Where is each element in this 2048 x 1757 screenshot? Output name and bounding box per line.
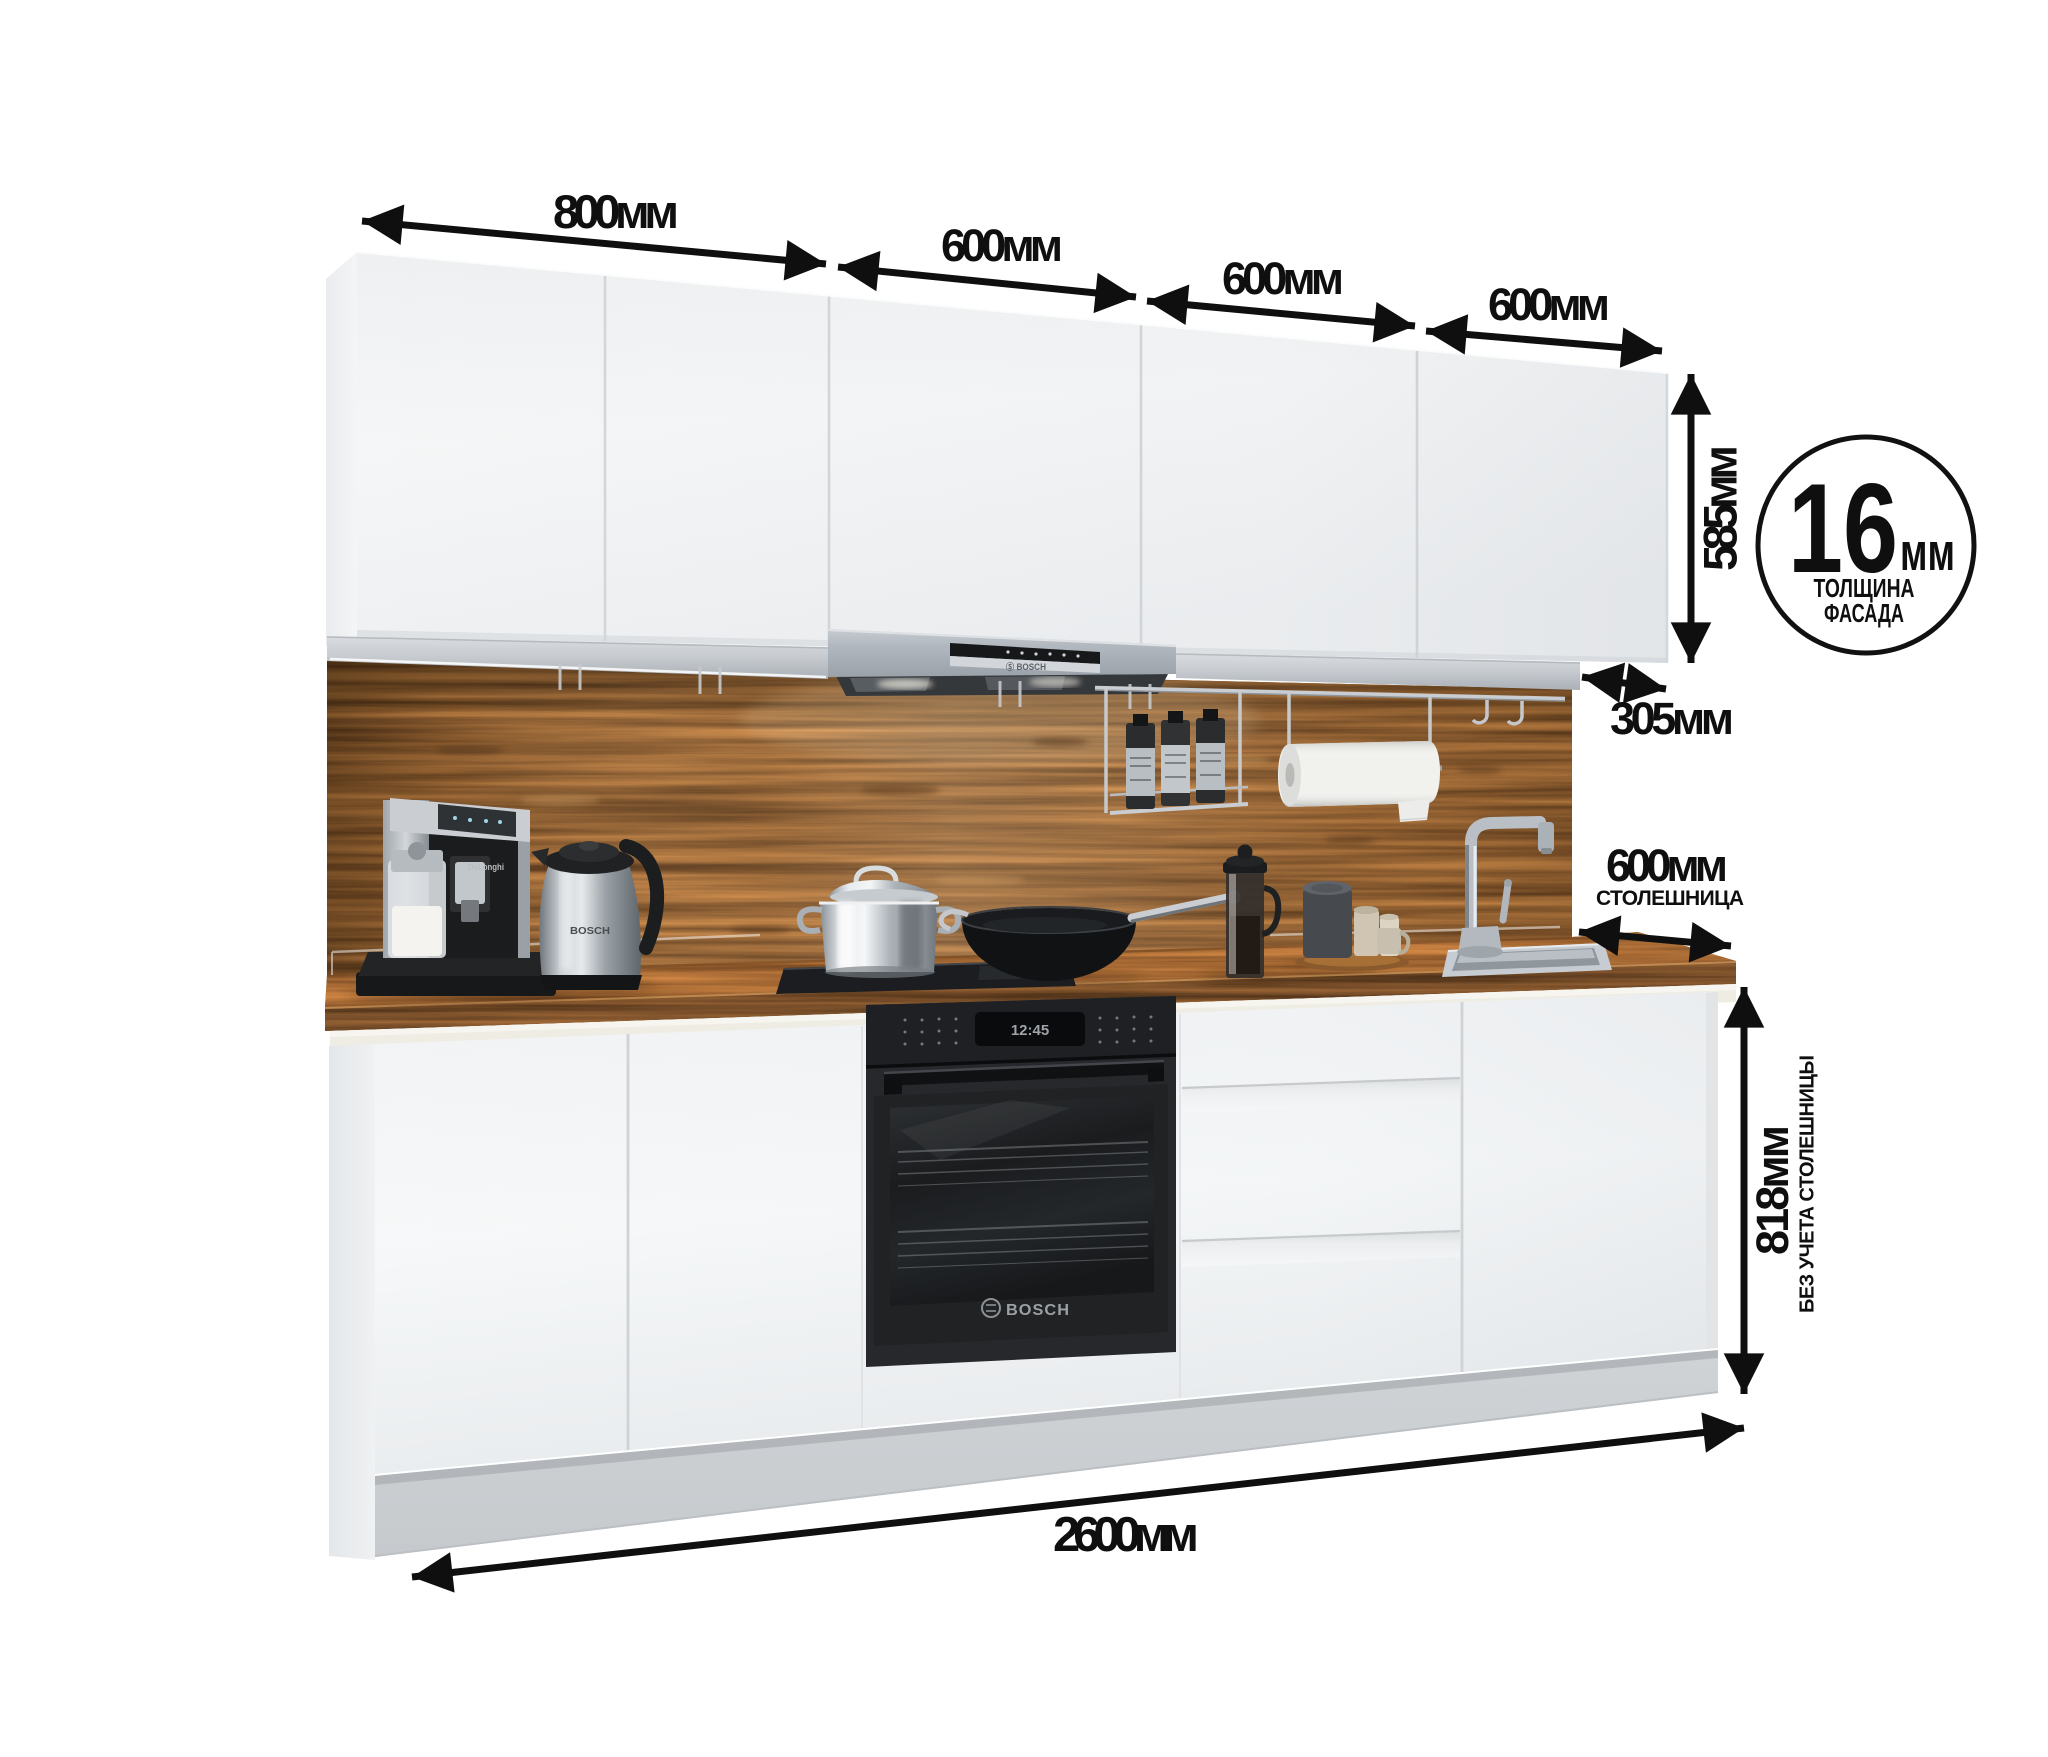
svg-text:Ⓢ BOSCH: Ⓢ BOSCH [1006, 661, 1046, 672]
svg-text:800мм: 800мм [553, 185, 679, 238]
svg-text:2600мм: 2600мм [1053, 1508, 1199, 1562]
svg-text:DeLonghi: DeLonghi [468, 862, 504, 872]
svg-text:600мм: 600мм [1606, 840, 1728, 891]
svg-text:600мм: 600мм [1488, 279, 1610, 330]
svg-text:585мм: 585мм [1693, 445, 1746, 571]
svg-text:BOSCH: BOSCH [1006, 1302, 1070, 1319]
svg-text:600мм: 600мм [1222, 253, 1344, 304]
svg-text:305мм: 305мм [1610, 693, 1734, 744]
svg-text:818мм: 818мм [1747, 1125, 1798, 1255]
svg-text:BOSCH: BOSCH [570, 926, 610, 937]
svg-text:БЕЗ УЧЕТА СТОЛЕШНИЦЫ: БЕЗ УЧЕТА СТОЛЕШНИЦЫ [1796, 1055, 1818, 1313]
svg-text:600мм: 600мм [941, 220, 1063, 271]
svg-text:ФАСАДА: ФАСАДА [1824, 598, 1904, 628]
svg-text:СТОЛЕШНИЦА: СТОЛЕШНИЦА [1596, 887, 1744, 910]
svg-text:12:45: 12:45 [1011, 1022, 1049, 1039]
